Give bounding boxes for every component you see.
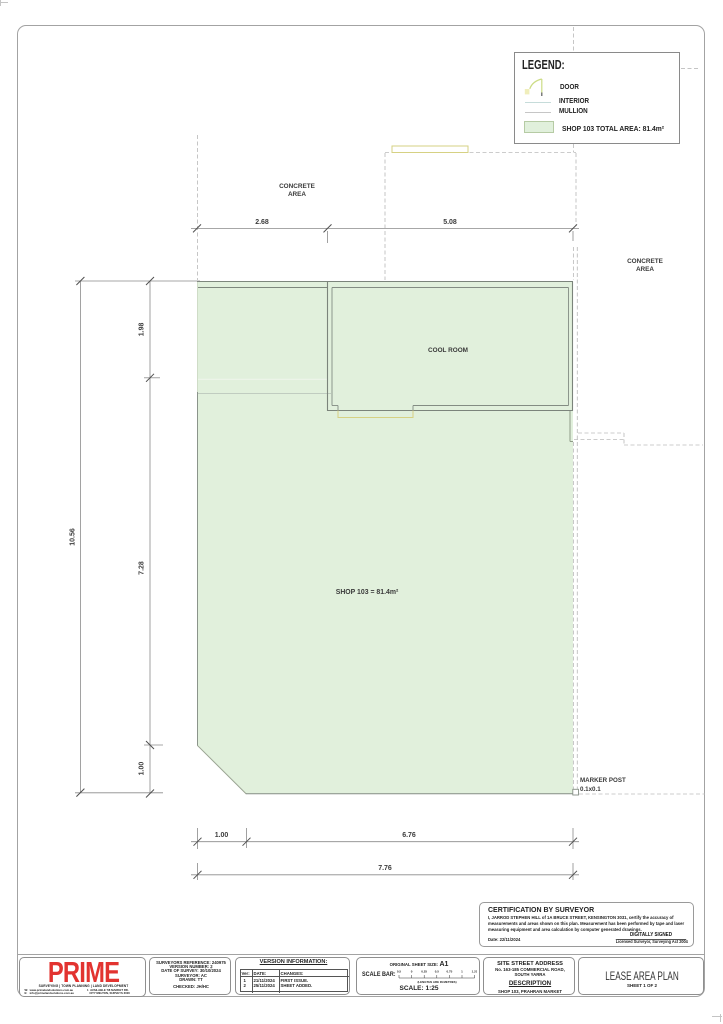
svg-text:1.00: 1.00 — [215, 832, 229, 839]
svg-text:AREA: AREA — [636, 266, 654, 273]
svg-text:MARKER POST: MARKER POST — [580, 777, 626, 784]
svg-text:10.56: 10.56 — [70, 528, 77, 546]
svg-text:CONCRETE: CONCRETE — [627, 258, 664, 265]
svg-text:SHOP 103 = 81.4m²: SHOP 103 = 81.4m² — [336, 589, 399, 596]
svg-text:0.75: 0.75 — [446, 970, 452, 974]
svg-text:6.76: 6.76 — [402, 832, 416, 839]
svg-text:CONCRETE: CONCRETE — [279, 183, 316, 190]
svg-text:1: 1 — [461, 970, 463, 974]
svg-text:AREA: AREA — [288, 191, 306, 198]
svg-text:5.08: 5.08 — [443, 219, 457, 226]
svg-text:0.5: 0.5 — [397, 970, 401, 974]
svg-text:7.28: 7.28 — [139, 561, 146, 575]
svg-text:COOL ROOM: COOL ROOM — [428, 347, 468, 354]
svg-text:0: 0 — [411, 970, 413, 974]
svg-text:1.25: 1.25 — [472, 970, 477, 974]
svg-text:1.00: 1.00 — [139, 762, 146, 776]
svg-text:0.1x0.1: 0.1x0.1 — [580, 786, 601, 793]
svg-text:2.68: 2.68 — [255, 219, 269, 226]
svg-text:0.5: 0.5 — [435, 970, 440, 974]
svg-text:1.98: 1.98 — [139, 322, 146, 336]
svg-text:7.76: 7.76 — [378, 865, 392, 872]
svg-text:0.25: 0.25 — [421, 970, 427, 974]
